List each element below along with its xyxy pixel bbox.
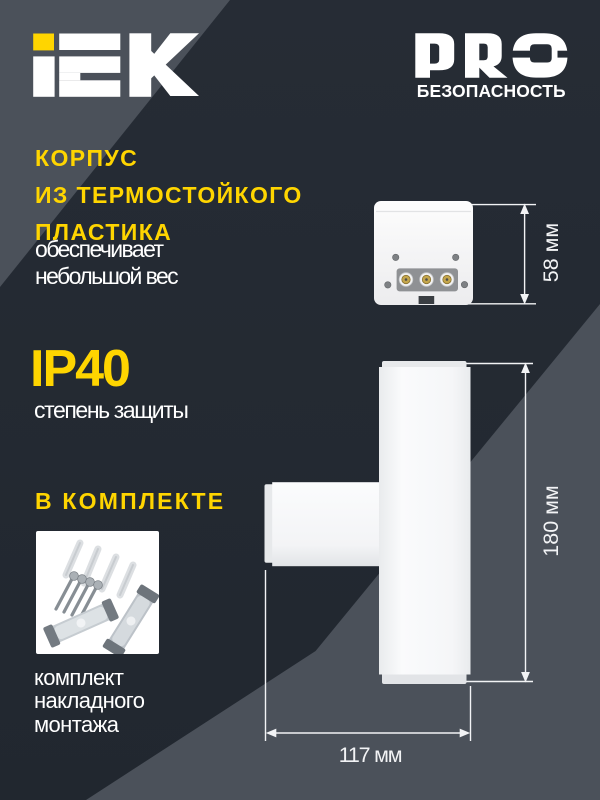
svg-text:117 мм: 117 мм [339,743,402,767]
svg-text:180 мм: 180 мм [539,485,563,556]
svg-text:58 мм: 58 мм [539,223,563,282]
